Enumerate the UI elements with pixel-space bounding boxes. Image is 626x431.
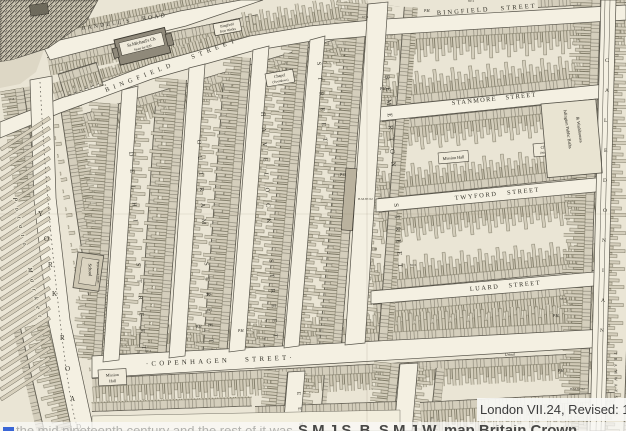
svg-text:B.M.82·62: B.M.82·62: [570, 387, 585, 391]
svg-text:Hall: Hall: [109, 378, 117, 383]
svg-text:P.H.: P.H.: [552, 314, 560, 318]
svg-text:N: N: [600, 328, 604, 334]
svg-text:A: A: [70, 395, 75, 403]
svg-text:I: I: [602, 268, 604, 274]
svg-text:O: O: [65, 365, 70, 373]
svg-text:37·8: 37·8: [8, 97, 15, 101]
svg-text:R: R: [48, 261, 53, 269]
svg-text:89·3: 89·3: [145, 349, 152, 353]
svg-text:P.H.: P.H.: [557, 369, 565, 373]
svg-text:P.H.: P.H.: [237, 329, 245, 333]
svg-text:P.H.: P.H.: [379, 87, 387, 91]
svg-text:N: N: [602, 238, 606, 244]
svg-text:62·4: 62·4: [100, 83, 107, 87]
svg-text:P.H.: P.H.: [195, 325, 203, 329]
svg-text:100: 100: [372, 247, 377, 251]
svg-text:A: A: [601, 298, 605, 304]
svg-text:80·2: 80·2: [468, 0, 475, 3]
svg-text:C: C: [605, 58, 609, 64]
svg-text:Mission: Mission: [106, 372, 119, 378]
svg-text:K: K: [52, 290, 57, 298]
svg-text:School: School: [87, 263, 92, 277]
svg-text:P.H.: P.H.: [423, 9, 431, 13]
svg-text:E: E: [604, 148, 608, 154]
svg-text:84·6: 84·6: [410, 263, 417, 267]
svg-text:88·8: 88·8: [560, 297, 567, 301]
svg-text:P.O.: P.O.: [339, 173, 347, 177]
svg-text:Urinal: Urinal: [505, 352, 515, 357]
svg-text:A: A: [605, 88, 609, 94]
svg-text:O: O: [44, 235, 49, 243]
svg-text:B.M.85·02: B.M.85·02: [358, 197, 373, 201]
